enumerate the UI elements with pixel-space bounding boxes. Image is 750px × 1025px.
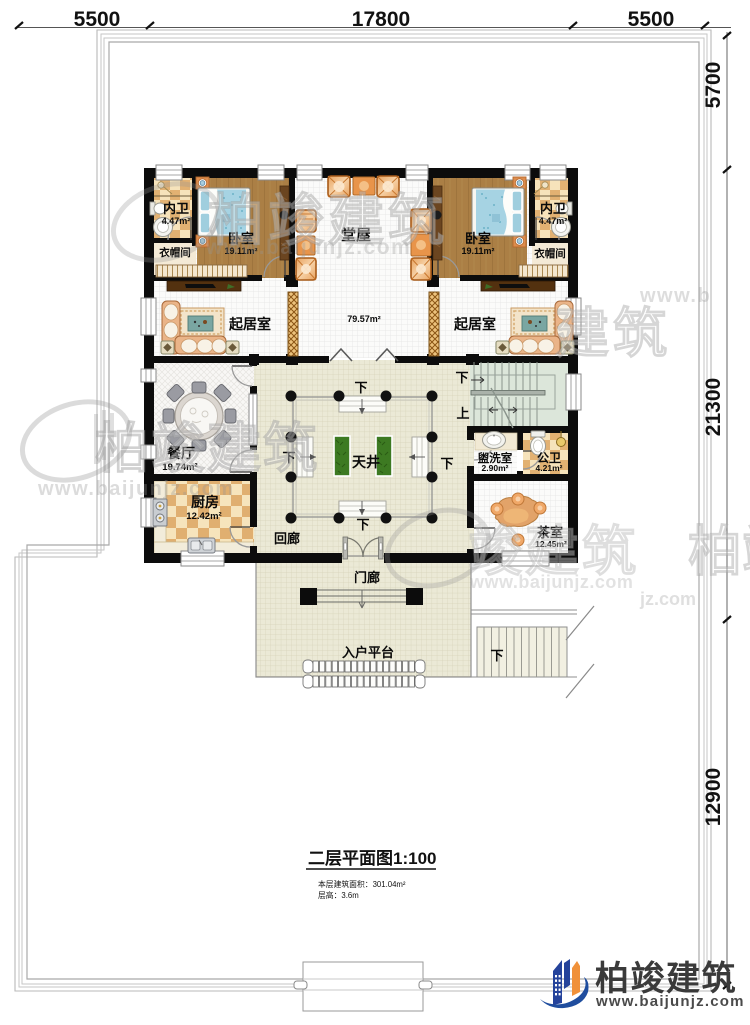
svg-text:21300: 21300 [702,378,725,436]
svg-text:下: 下 [354,380,367,395]
svg-text:回廊: 回廊 [274,531,300,546]
svg-text:层高：3.6m: 层高：3.6m [318,890,359,900]
svg-text:内卫: 内卫 [540,201,566,216]
svg-text:2.90m²: 2.90m² [482,463,509,473]
svg-text:二层平面图1:100: 二层平面图1:100 [308,849,436,868]
svg-text:www.baijunjz.com: www.baijunjz.com [205,236,411,259]
svg-text:5700: 5700 [702,62,725,109]
svg-text:起居室: 起居室 [453,316,496,332]
svg-text:5500: 5500 [628,8,675,31]
svg-text:www.baijunjz.com: www.baijunjz.com [469,572,633,592]
svg-text:本层建筑面积：301.04m²: 本层建筑面积：301.04m² [318,879,406,889]
svg-text:4.21m²: 4.21m² [536,463,563,473]
svg-text:入户平台: 入户平台 [342,645,394,660]
svg-text:下: 下 [490,648,503,663]
svg-text:17800: 17800 [352,8,410,31]
svg-text:4.47m²: 4.47m² [162,216,191,226]
svg-text:门廊: 门廊 [354,570,380,585]
svg-text:4.47m²: 4.47m² [539,216,568,226]
svg-text:下: 下 [356,517,369,532]
svg-text:www.baijunjz.com: www.baijunjz.com [595,993,745,1010]
svg-text:衣帽间: 衣帽间 [534,247,566,260]
svg-text:5500: 5500 [74,8,121,31]
svg-text:起居室: 起居室 [228,316,271,332]
svg-text:www.b: www.b [639,285,711,307]
svg-text:19.11m²: 19.11m² [461,246,494,256]
svg-text:12.42m²: 12.42m² [186,511,221,522]
svg-text:12900: 12900 [702,768,725,826]
svg-text:jz.com: jz.com [639,589,696,609]
svg-text:天井: 天井 [352,454,380,470]
svg-text:建筑: 建筑 [555,304,671,364]
svg-text:下: 下 [440,456,453,471]
svg-text:卧室: 卧室 [465,231,491,246]
svg-text:内卫: 内卫 [163,201,189,216]
svg-text:柏竣: 柏竣 [688,522,750,582]
svg-text:上: 上 [456,406,469,421]
svg-text:79.57m²: 79.57m² [347,314,381,324]
svg-text:下: 下 [455,370,468,385]
